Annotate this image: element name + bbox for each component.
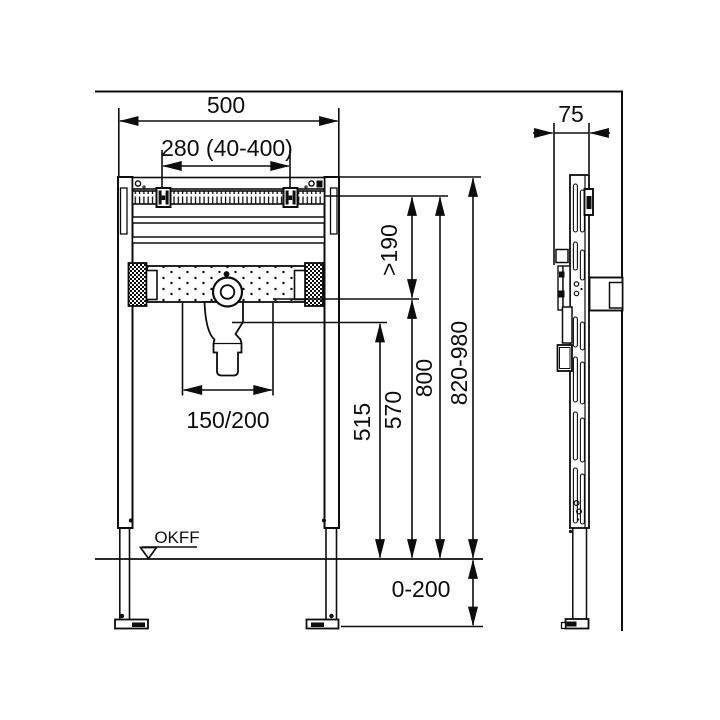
drain-outlet-inner <box>221 285 235 299</box>
okff-level-icon <box>141 548 157 559</box>
left-column-slot <box>121 188 128 234</box>
rail-dot <box>577 518 579 520</box>
right-leg <box>307 519 339 629</box>
dim-fixing-label: 280 (40-400) <box>142 136 312 160</box>
wall-bracket-pad <box>587 196 592 209</box>
side-leg <box>562 528 589 629</box>
side-fittings <box>556 250 572 372</box>
wall-outline <box>95 92 622 632</box>
floor-level-label: OKFF <box>142 529 212 547</box>
dim-tap-height-label: 570 <box>381 375 405 445</box>
plate-clamp-left <box>129 263 147 306</box>
dim-leg-range-label: 0-200 <box>376 577 466 601</box>
dim-width-label: 500 <box>186 93 266 117</box>
plate-bolt-dot <box>224 271 230 277</box>
dim-clearance-label: >190 <box>377 215 401 285</box>
dim-rail-height-label: 800 <box>412 343 436 413</box>
rail-dot <box>580 288 582 290</box>
clamp-slot-right <box>295 271 306 300</box>
bolt-block <box>317 181 323 188</box>
fixing-slider-left <box>157 188 171 207</box>
crossbar-lower <box>133 237 325 243</box>
clamp-slot-left <box>147 271 158 300</box>
dim-drain-offset-label: 150/200 <box>173 408 283 432</box>
side-view <box>95 92 623 632</box>
drawing-canvas <box>0 0 720 720</box>
dim-frame-height-label: 820-980 <box>447 308 471 418</box>
fixing-slider-right <box>284 188 298 207</box>
drain-trap-body <box>205 302 244 376</box>
dim-depth-label: 75 <box>546 102 596 126</box>
dim-drain-height-label: 515 <box>350 387 374 457</box>
crossbar-upper <box>133 217 325 223</box>
drain-sleeve-inner <box>610 283 623 309</box>
right-column-slot <box>331 188 338 234</box>
front-view <box>115 177 339 629</box>
technical-drawing: 500 280 (40-400) 75 >190 515 570 800 820… <box>0 0 720 720</box>
